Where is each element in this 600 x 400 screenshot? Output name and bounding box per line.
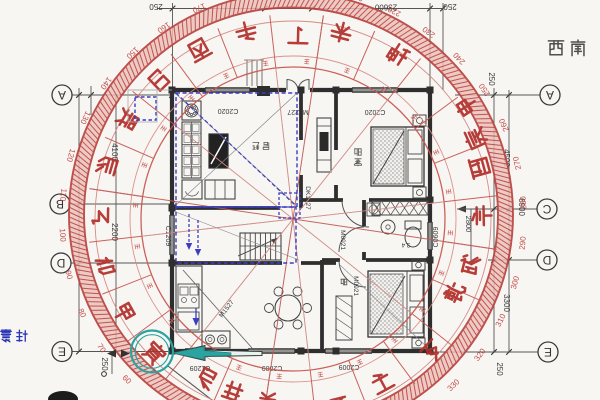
svg-text:D: D [56, 256, 65, 270]
svg-text:3300: 3300 [502, 294, 511, 312]
svg-text:C2020: C2020 [218, 107, 239, 114]
svg-text:290: 290 [518, 235, 528, 250]
svg-text:C0609: C0609 [433, 227, 440, 248]
svg-text:110: 110 [58, 188, 68, 202]
svg-text:A: A [546, 88, 554, 102]
svg-text:M0921: M0921 [339, 230, 346, 250]
svg-text:100: 100 [58, 228, 68, 242]
svg-text:D: D [542, 253, 551, 267]
svg-text:250: 250 [149, 2, 163, 11]
svg-text:250: 250 [487, 72, 496, 86]
svg-text:3.4: 3.4 [401, 241, 410, 247]
svg-text:250: 250 [100, 357, 109, 371]
svg-text:C1209: C1209 [164, 226, 171, 247]
svg-text:E: E [58, 344, 66, 358]
svg-text:E: E [544, 345, 552, 359]
svg-text:280: 280 [518, 195, 528, 209]
svg-text:M0921: M0921 [352, 276, 359, 296]
svg-text:C2020: C2020 [365, 108, 386, 115]
svg-text:250: 250 [443, 2, 457, 11]
svg-text:2800: 2800 [464, 216, 473, 233]
svg-text:C: C [542, 202, 551, 216]
svg-text:250: 250 [495, 362, 504, 376]
svg-text:A: A [58, 88, 66, 102]
svg-text:M2227: M2227 [287, 108, 309, 115]
